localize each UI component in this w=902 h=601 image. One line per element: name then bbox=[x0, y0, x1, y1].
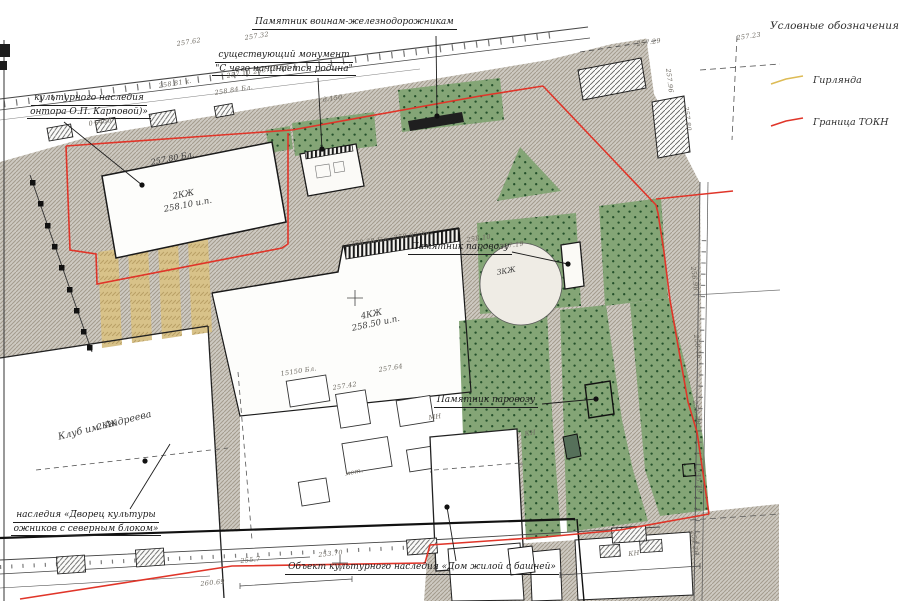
legend-items: ГирляндаГраница ТОКН bbox=[770, 72, 902, 130]
garland-line-swatch bbox=[770, 74, 804, 86]
legend-item-tokn-boundary: Граница ТОКН bbox=[770, 114, 902, 130]
leader-target-dot bbox=[142, 458, 147, 463]
tokn-boundary-line-swatch bbox=[770, 116, 804, 128]
leader-target-dot bbox=[565, 261, 570, 266]
site-plan-page: Памятник воинам-железнодорожникамсуществ… bbox=[0, 0, 902, 601]
legend: Условные обозначения ГирляндаГраница ТОК… bbox=[770, 20, 902, 130]
circular-plaza bbox=[480, 243, 562, 325]
map-canvas bbox=[0, 0, 902, 601]
leader-target-dot bbox=[444, 504, 449, 509]
legend-item-label: Гирлянда bbox=[813, 75, 862, 86]
leader-target-dot bbox=[593, 396, 598, 401]
legend-item-label: Граница ТОКН bbox=[813, 117, 889, 128]
legend-title: Условные обозначения bbox=[770, 20, 902, 32]
locomotive-pedestal-1 bbox=[561, 242, 584, 289]
legend-item-garland: Гирлянда bbox=[770, 72, 902, 88]
leader-target-dot bbox=[434, 113, 439, 118]
leader-target-dot bbox=[319, 146, 324, 151]
leader-target-dot bbox=[139, 182, 144, 187]
